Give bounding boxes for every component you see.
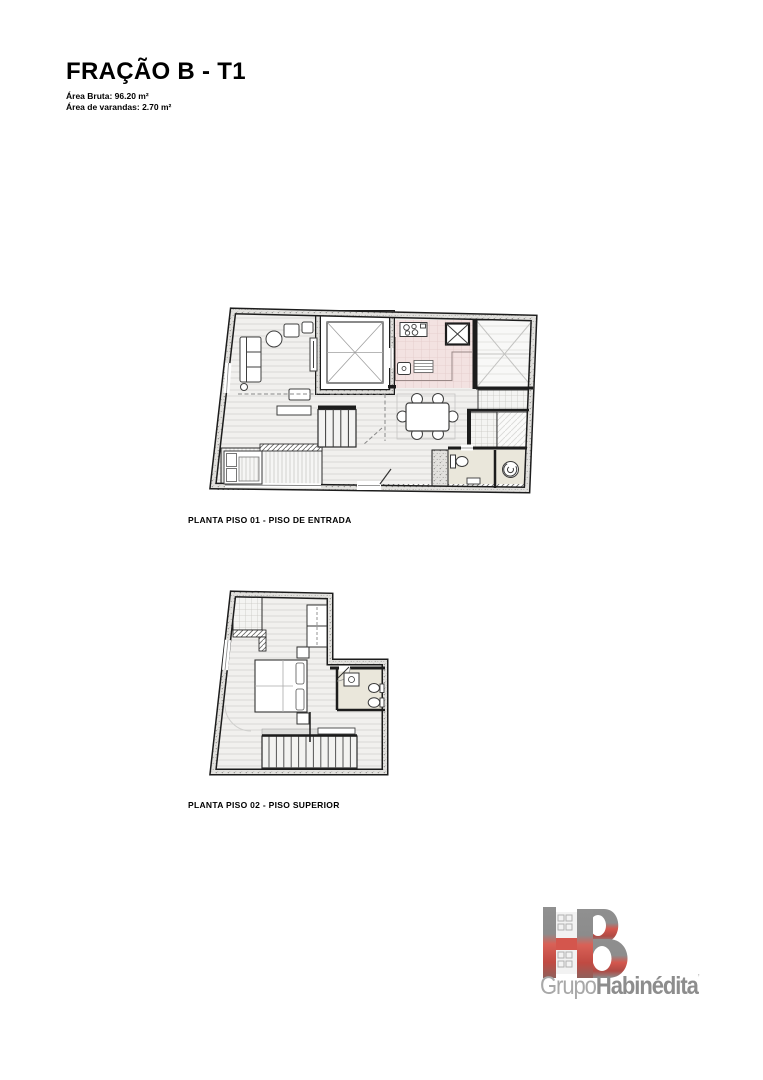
terrace: [476, 320, 533, 388]
balcony-storage: [224, 451, 262, 484]
balcony-area-line: Área de varandas: 2.70 m²: [66, 102, 246, 113]
stairs-level1: [318, 406, 356, 448]
double-bed: [255, 660, 307, 712]
floor-plan-2-drawing: [203, 585, 403, 785]
header: FRAÇÃO B - T1 Área Bruta: 96.20 m² Área …: [66, 60, 246, 113]
nightstand-2: [297, 713, 309, 724]
nightstand-1: [297, 647, 309, 658]
floor-plan-2: [203, 585, 403, 785]
logo-text-grupo: Grupo: [540, 972, 596, 1000]
terrace-wall-hatch: [233, 630, 266, 637]
plan1-label: PLANTA PISO 01 - PISO DE ENTRADA: [188, 515, 352, 525]
gross-area-line: Área Bruta: 96.20 m²: [66, 91, 246, 102]
wc-sink: [467, 478, 480, 484]
logo-letter-b: [577, 909, 628, 978]
floor-plan-1-drawing: [205, 293, 545, 503]
logo-wordmark: GrupoHabinédita’: [540, 972, 700, 1001]
side-strip: [497, 412, 527, 448]
entry-patio-grid: [469, 412, 497, 448]
page-title: FRAÇÃO B - T1: [66, 60, 246, 84]
floor-plan-1: [205, 293, 545, 503]
toilet-tank: [451, 455, 456, 468]
bidet: [369, 684, 380, 693]
entry-pier: [432, 450, 448, 488]
upper-terrace: [233, 597, 262, 630]
company-logo: GrupoHabinédita’: [540, 902, 750, 1012]
vent-shaft: [446, 324, 469, 345]
terrace-wall-hatch-2: [259, 637, 266, 651]
logo-letter-h-bar: [543, 907, 556, 978]
side-balcony-grid: [478, 390, 529, 410]
hb-monogram-icon: [540, 902, 690, 982]
floorplan-sheet: { "header": { "title": "FRAÇÃO B - T1", …: [0, 0, 763, 1080]
stair-void-shaft: [318, 313, 394, 392]
trademark-mark: ’: [698, 973, 700, 984]
kitchen-sink: [398, 363, 411, 375]
plan2-label: PLANTA PISO 02 - PISO SUPERIOR: [188, 800, 340, 810]
logo-text-habinedita: Habinédita: [596, 972, 698, 1000]
toilet-2: [368, 698, 380, 708]
bath-sink: [344, 673, 359, 686]
balcony-wall-hatch: [260, 444, 322, 451]
toilet: [456, 457, 468, 467]
shower-drain: [503, 462, 519, 478]
